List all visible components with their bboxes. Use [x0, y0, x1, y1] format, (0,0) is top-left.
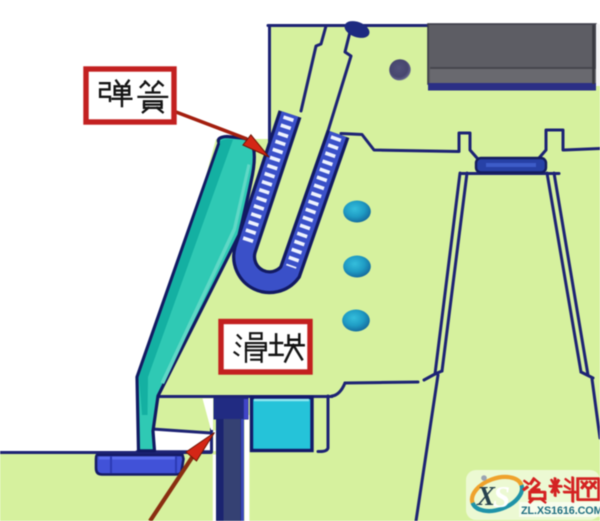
svg-text:ZL.XS1616.COM: ZL.XS1616.COM — [521, 505, 600, 517]
svg-text:S: S — [493, 479, 510, 514]
